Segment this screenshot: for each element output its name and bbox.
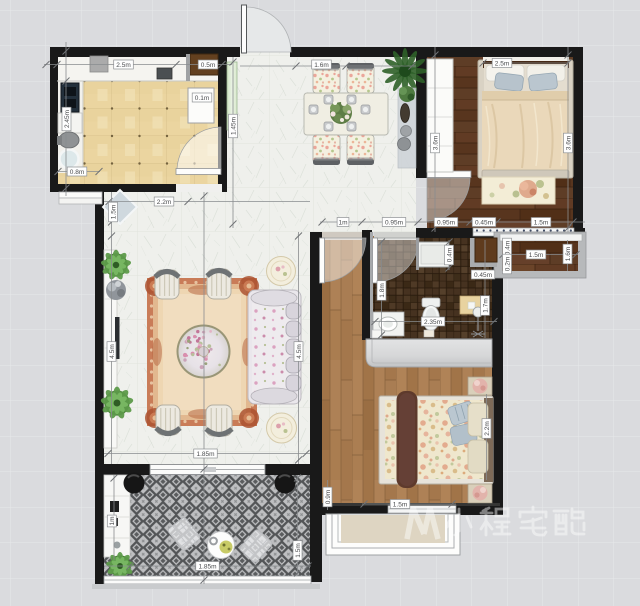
svg-text:0.45m: 0.45m — [474, 272, 492, 279]
svg-text:2.2m: 2.2m — [484, 421, 491, 435]
svg-text:1.5m: 1.5m — [393, 501, 407, 508]
svg-text:1.85m: 1.85m — [198, 563, 216, 570]
svg-text:0.2m: 0.2m — [504, 257, 511, 271]
svg-text:1.6m: 1.6m — [314, 62, 328, 69]
svg-text:2.35m: 2.35m — [424, 319, 442, 326]
svg-text:1.5m: 1.5m — [110, 205, 117, 219]
svg-text:1.85m: 1.85m — [196, 451, 214, 458]
svg-text:0.5m: 0.5m — [201, 62, 215, 69]
svg-text:1m: 1m — [338, 219, 347, 226]
svg-text:0.8m: 0.8m — [70, 169, 84, 176]
svg-text:0.4m: 0.4m — [504, 241, 511, 255]
svg-text:2.2m: 2.2m — [157, 199, 171, 206]
svg-text:0.9m: 0.9m — [325, 490, 332, 504]
svg-text:4.5m: 4.5m — [296, 344, 303, 358]
svg-text:1.8m: 1.8m — [379, 283, 386, 297]
svg-text:1.5m: 1.5m — [529, 252, 543, 259]
svg-text:2.45m: 2.45m — [64, 110, 71, 128]
svg-text:0.45m: 0.45m — [475, 219, 493, 226]
svg-text:3.6m: 3.6m — [565, 136, 572, 150]
svg-text:3.6m: 3.6m — [432, 136, 439, 150]
svg-text:2.5m: 2.5m — [116, 62, 130, 69]
svg-text:0.4m: 0.4m — [446, 248, 453, 262]
svg-text:0.95m: 0.95m — [385, 219, 403, 226]
svg-text:1.5m: 1.5m — [534, 219, 548, 226]
svg-text:1.5m: 1.5m — [295, 543, 302, 557]
svg-text:1.45m: 1.45m — [230, 117, 237, 135]
svg-text:0.95m: 0.95m — [437, 219, 455, 226]
svg-text:4.5m: 4.5m — [109, 344, 116, 358]
svg-text:2.5m: 2.5m — [495, 60, 509, 67]
svg-text:1.7m: 1.7m — [482, 298, 489, 312]
svg-text:0.1m: 0.1m — [195, 95, 209, 102]
svg-text:1m: 1m — [109, 516, 116, 525]
svg-text:1.6m: 1.6m — [565, 247, 572, 261]
